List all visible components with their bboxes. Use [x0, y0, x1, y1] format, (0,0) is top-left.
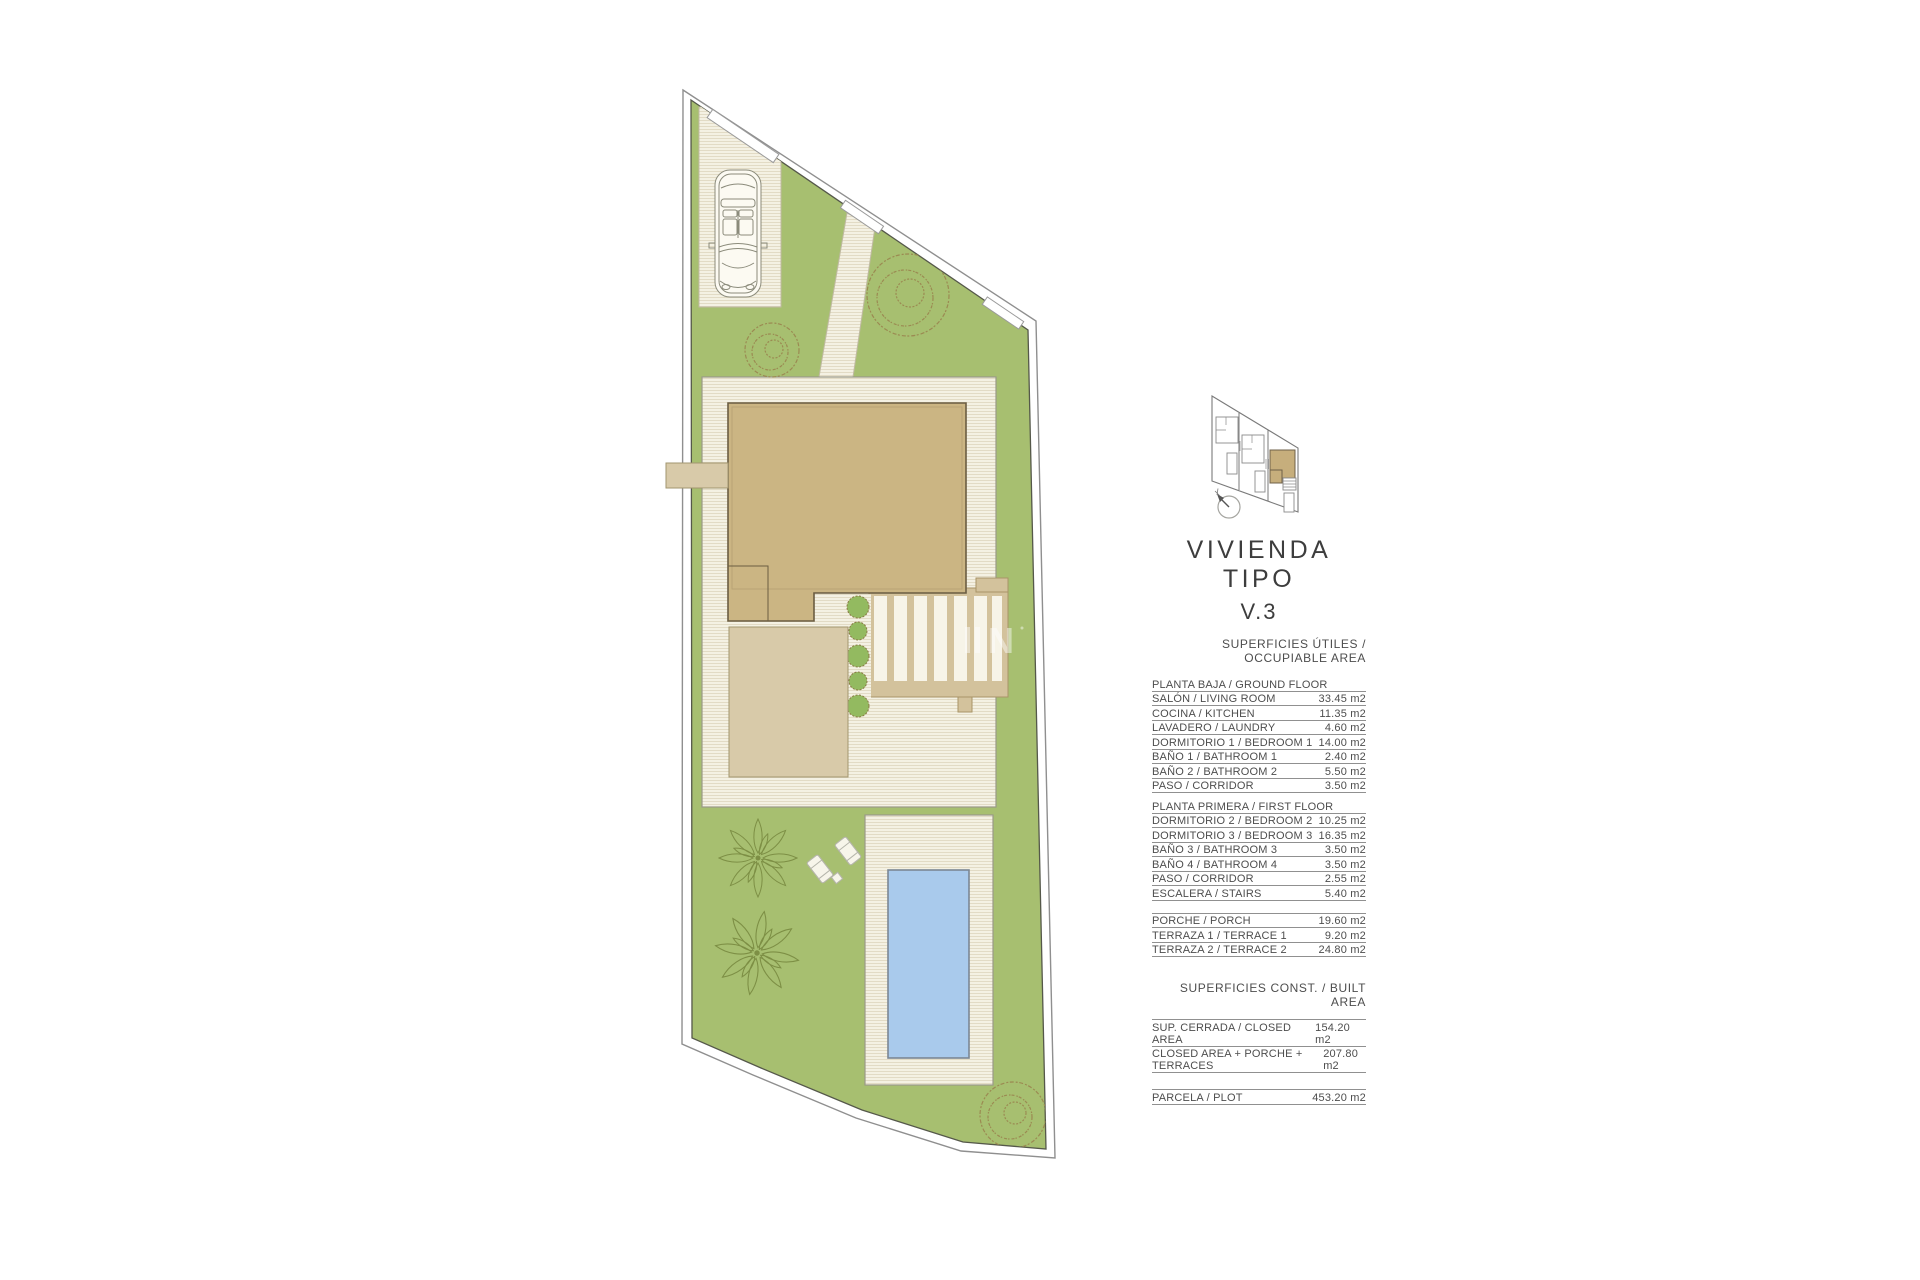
table-row: PARCELA / PLOT453.20 m2 — [1152, 1090, 1366, 1105]
table-row: TERRAZA 1 / TERRACE 19.20 m2 — [1152, 928, 1366, 943]
table-row: DORMITORIO 3 / BEDROOM 316.35 m2 — [1152, 828, 1366, 843]
area-value: 207.80 m2 — [1323, 1048, 1366, 1072]
car-icon — [709, 170, 767, 297]
plot-area-rows: PARCELA / PLOT453.20 m2 — [1152, 1089, 1366, 1105]
area-label: PORCHE / PORCH — [1152, 915, 1251, 927]
area-value: 14.00 m2 — [1319, 737, 1366, 749]
table-row: SALÓN / LIVING ROOM33.45 m2 — [1152, 692, 1366, 707]
table-row: TERRAZA 2 / TERRACE 224.80 m2 — [1152, 943, 1366, 958]
table-row: BAÑO 3 / BATHROOM 33.50 m2 — [1152, 843, 1366, 858]
area-value: 19.60 m2 — [1319, 915, 1366, 927]
entry-walkway — [666, 463, 728, 488]
table-row: BAÑO 2 / BATHROOM 25.50 m2 — [1152, 764, 1366, 779]
area-value: 154.20 m2 — [1315, 1022, 1366, 1046]
title-block: VIVIENDA TIPO V.3 — [1152, 536, 1366, 625]
plan-subtitle: V.3 — [1152, 599, 1366, 625]
swimming-pool — [888, 870, 969, 1058]
area-label: DORMITORIO 2 / BEDROOM 2 — [1152, 815, 1312, 827]
table-row: DORMITORIO 2 / BEDROOM 210.25 m2 — [1152, 814, 1366, 829]
area-value: 10.25 m2 — [1319, 815, 1366, 827]
area-value: 5.50 m2 — [1325, 766, 1366, 778]
area-label: DORMITORIO 3 / BEDROOM 3 — [1152, 830, 1312, 842]
built-area-rows: SUP. CERRADA / CLOSED AREA154.20 m2CLOSE… — [1152, 1019, 1366, 1073]
area-value: 5.40 m2 — [1325, 888, 1366, 900]
area-label: TERRAZA 2 / TERRACE 2 — [1152, 944, 1287, 956]
area-value: 3.50 m2 — [1325, 844, 1366, 856]
house-roof — [728, 403, 966, 621]
area-label: COCINA / KITCHEN — [1152, 708, 1255, 720]
area-value: 4.60 m2 — [1325, 722, 1366, 734]
area-value: 2.55 m2 — [1325, 873, 1366, 885]
north-compass-icon — [1215, 489, 1240, 519]
area-label: LAVADERO / LAUNDRY — [1152, 722, 1275, 734]
area-value: 16.35 m2 — [1319, 830, 1366, 842]
table-row: PORCHE / PORCH19.60 m2 — [1152, 914, 1366, 929]
area-label: PASO / CORRIDOR — [1152, 780, 1254, 792]
table-row: PASO / CORRIDOR3.50 m2 — [1152, 779, 1366, 794]
area-value: 3.50 m2 — [1325, 780, 1366, 792]
porch-roof — [729, 627, 848, 777]
area-label: ESCALERA / STAIRS — [1152, 888, 1262, 900]
ground-floor-rows: SALÓN / LIVING ROOM33.45 m2COCINA / KITC… — [1152, 692, 1366, 794]
areas-table: SUPERFICIES ÚTILES / OCCUPIABLE AREA PLA… — [1152, 637, 1366, 1105]
area-value: 453.20 m2 — [1312, 1092, 1366, 1104]
section-label-first-floor: PLANTA PRIMERA / FIRST FLOOR — [1152, 799, 1366, 814]
table-row: ESCALERA / STAIRS5.40 m2 — [1152, 886, 1366, 901]
area-label: CLOSED AREA + PORCHE + TERRACES — [1152, 1048, 1323, 1072]
table-row: COCINA / KITCHEN11.35 m2 — [1152, 706, 1366, 721]
table-row: SUP. CERRADA / CLOSED AREA154.20 m2 — [1152, 1020, 1366, 1047]
area-label: BAÑO 4 / BATHROOM 4 — [1152, 859, 1277, 871]
area-value: 11.35 m2 — [1319, 708, 1366, 720]
area-label: SALÓN / LIVING ROOM — [1152, 693, 1276, 705]
table-row: PASO / CORRIDOR2.55 m2 — [1152, 872, 1366, 887]
site-plan-svg: N — [0, 0, 1920, 1280]
section-label-ground-floor: PLANTA BAJA / GROUND FLOOR — [1152, 677, 1366, 692]
outdoor-rows: PORCHE / PORCH19.60 m2TERRAZA 1 / TERRAC… — [1152, 913, 1366, 958]
area-label: DORMITORIO 1 / BEDROOM 1 — [1152, 737, 1312, 749]
area-value: 2.40 m2 — [1325, 751, 1366, 763]
area-label: SUP. CERRADA / CLOSED AREA — [1152, 1022, 1315, 1046]
table-row: LAVADERO / LAUNDRY4.60 m2 — [1152, 721, 1366, 736]
planter — [846, 594, 871, 723]
area-value: 3.50 m2 — [1325, 859, 1366, 871]
table-row: BAÑO 4 / BATHROOM 43.50 m2 — [1152, 857, 1366, 872]
area-label: PARCELA / PLOT — [1152, 1092, 1243, 1104]
location-key-plan — [1212, 396, 1298, 512]
area-value: 9.20 m2 — [1325, 930, 1366, 942]
occupiable-area-header: SUPERFICIES ÚTILES / OCCUPIABLE AREA — [1152, 637, 1366, 665]
area-label: BAÑO 3 / BATHROOM 3 — [1152, 844, 1277, 856]
table-row: BAÑO 1 / BATHROOM 12.40 m2 — [1152, 750, 1366, 765]
architectural-plan-page: { "title": { "line1": "VIVIENDA TIPO", "… — [0, 0, 1920, 1280]
area-value: 33.45 m2 — [1319, 693, 1366, 705]
plan-title: VIVIENDA TIPO — [1152, 536, 1366, 594]
area-label: TERRAZA 1 / TERRACE 1 — [1152, 930, 1287, 942]
first-floor-rows: DORMITORIO 2 / BEDROOM 210.25 m2DORMITOR… — [1152, 814, 1366, 901]
area-value: 24.80 m2 — [1319, 944, 1366, 956]
table-row: CLOSED AREA + PORCHE + TERRACES207.80 m2 — [1152, 1047, 1366, 1074]
area-label: BAÑO 1 / BATHROOM 1 — [1152, 751, 1277, 763]
table-row: DORMITORIO 1 / BEDROOM 114.00 m2 — [1152, 735, 1366, 750]
area-label: BAÑO 2 / BATHROOM 2 — [1152, 766, 1277, 778]
area-label: PASO / CORRIDOR — [1152, 873, 1254, 885]
built-area-header: SUPERFICIES CONST. / BUILT AREA — [1152, 981, 1366, 1009]
svg-text:N: N — [988, 620, 1014, 661]
